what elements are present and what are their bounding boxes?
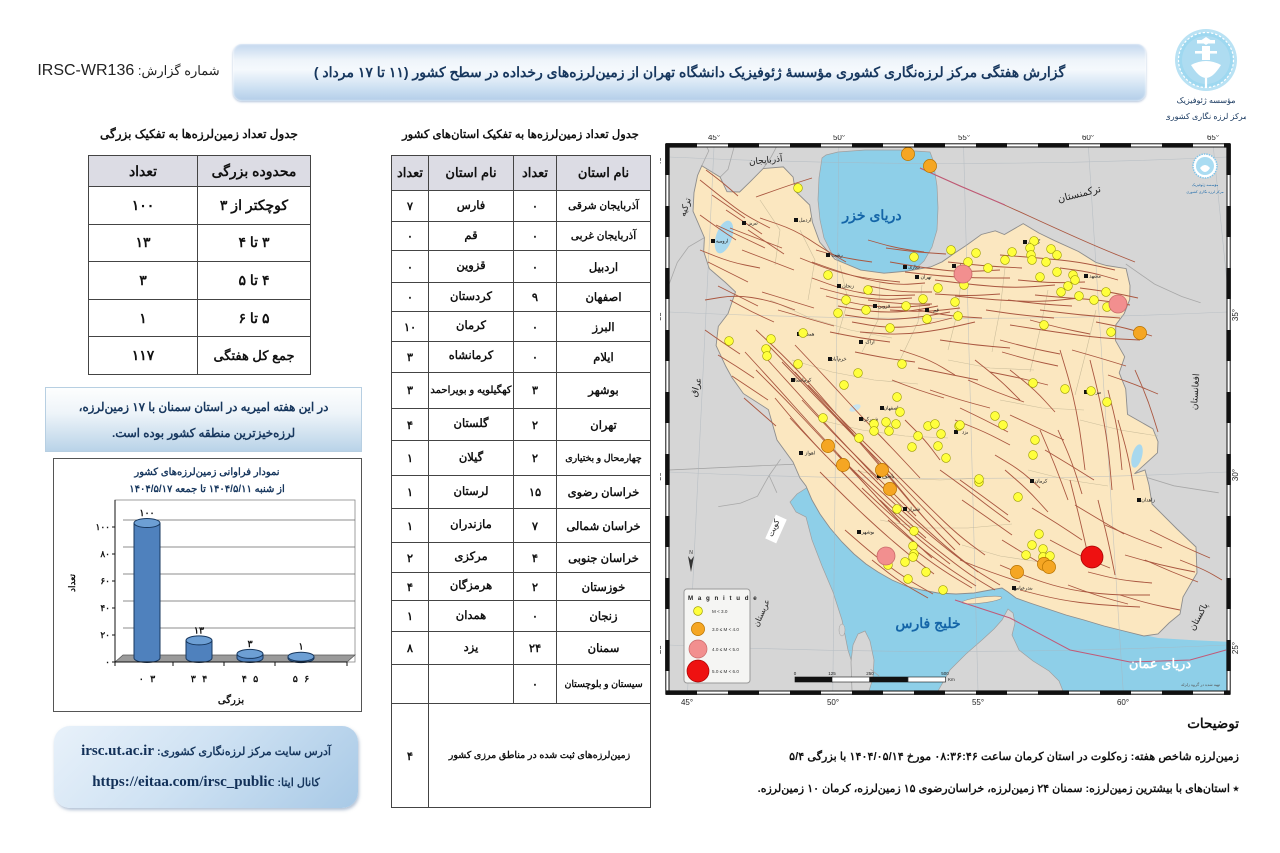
svg-text:نمودار فراوانی زمین‌لرزه‌های ک: نمودار فراوانی زمین‌لرزه‌های کشور [133,467,279,478]
svg-text:۱۳: ۱۳ [194,625,205,636]
svg-text:35°: 35° [660,309,663,321]
svg-text:500: 500 [941,671,949,676]
svg-text:کرمانشاه: کرمانشاه [793,378,812,384]
svg-text:30°: 30° [1231,469,1240,481]
svg-text:5.0 ≤ M < 6.0: 5.0 ≤ M < 6.0 [712,669,739,674]
svg-text:55°: 55° [958,135,970,142]
svg-text:زاهدان: زاهدان [1141,498,1155,504]
svg-text:اراک: اراک [865,340,874,346]
svg-text:۴ ۵: ۴ ۵ [242,674,259,685]
svg-text:خلیج فارس: خلیج فارس [895,615,960,632]
svg-text:۳ ۴: ۳ ۴ [191,674,208,685]
svg-text:30°: 30° [660,469,663,481]
svg-text:تعداد: تعداد [67,573,77,592]
svg-text:۰: ۰ [105,657,110,667]
svg-text:مؤسسه ژئوفیزیک: مؤسسه ژئوفیزیک [1176,96,1235,105]
svg-text:مرکز لرزه نگاری کشوری: مرکز لرزه نگاری کشوری [1166,111,1246,121]
svg-text:۶۰: ۶۰ [100,576,110,586]
svg-text:25°: 25° [660,642,663,654]
svg-text:شیراز: شیراز [907,507,920,513]
svg-text:بوشهر: بوشهر [861,531,875,536]
svg-text:۴۰: ۴۰ [100,603,110,613]
svg-text:یزد: یزد [962,431,969,436]
svg-text:۰ ۳: ۰ ۳ [139,674,156,685]
svg-text:3.0 ≤ M < 4.0: 3.0 ≤ M < 4.0 [712,627,739,632]
svg-text:۵ ۶: ۵ ۶ [293,674,310,685]
svg-text:N: N [689,550,693,556]
svg-text:تهران: تهران [920,275,932,281]
svg-text:دریای عمان: دریای عمان [1129,656,1191,672]
svg-text:125: 125 [828,671,836,676]
svg-text:60°: 60° [1082,135,1094,142]
svg-text:مرکز لرزه نگاری کشوری: مرکز لرزه نگاری کشوری [1186,189,1223,194]
svg-text:65°: 65° [1207,135,1219,142]
svg-text:۱: ۱ [298,642,303,653]
svg-text:M a g n i t u d e: M a g n i t u d e [688,595,758,602]
svg-text:45°: 45° [708,135,720,142]
svg-text:تبریز: تبریز [747,222,758,227]
svg-text:دریای خزر: دریای خزر [841,207,901,224]
svg-text:زنجان: زنجان [842,284,854,290]
svg-text:اهواز: اهواز [804,451,815,457]
svg-text:250: 250 [866,671,874,676]
svg-text:۳: ۳ [247,639,253,650]
svg-text:قزوین: قزوین [878,304,891,310]
svg-text:55°: 55° [972,698,984,707]
svg-text:خرم‌آباد: خرم‌آباد [832,356,847,363]
svg-text:قم: قم [933,308,939,314]
svg-text:ارومیه: ارومیه [716,239,729,245]
svg-text:۱۰۰: ۱۰۰ [139,508,154,519]
svg-text:Km: Km [948,677,955,682]
svg-text:مشهد: مشهد [1089,275,1101,280]
svg-text:35°: 35° [1231,309,1240,321]
svg-text:50°: 50° [827,698,839,707]
svg-text:از شنبه ۱۴۰۴/۵/۱۱ تا جمعه ۱۴۰۴: از شنبه ۱۴۰۴/۵/۱۱ تا جمعه ۱۴۰۴/۵/۱۷ [129,484,285,495]
svg-text:4.0 ≤ M < 5.0: 4.0 ≤ M < 5.0 [712,647,739,652]
svg-text:40°: 40° [660,154,663,166]
svg-text:60°: 60° [1117,698,1129,707]
svg-text:رشت: رشت [831,254,843,259]
svg-text:کرمان: کرمان [1035,479,1048,485]
svg-text:۱۰۰: ۱۰۰ [95,522,110,532]
svg-text:بندرعباس: بندرعباس [1013,586,1032,592]
svg-text:تهیه شده در گروه زلزله: تهیه شده در گروه زلزله [1181,682,1220,687]
svg-text:مؤسسه ژئوفیزیک: مؤسسه ژئوفیزیک [1192,182,1219,187]
svg-text:ساری: ساری [908,265,920,271]
svg-text:بزرگی: بزرگی [218,693,244,706]
svg-text:اردبیل: اردبیل [799,218,811,224]
svg-text:۲۰: ۲۰ [100,630,110,640]
svg-text:۸۰: ۸۰ [99,549,110,559]
svg-text:M < 3.0: M < 3.0 [712,609,728,614]
svg-text:25°: 25° [1231,642,1240,654]
svg-text:50°: 50° [833,135,845,142]
svg-text:45°: 45° [681,698,693,707]
